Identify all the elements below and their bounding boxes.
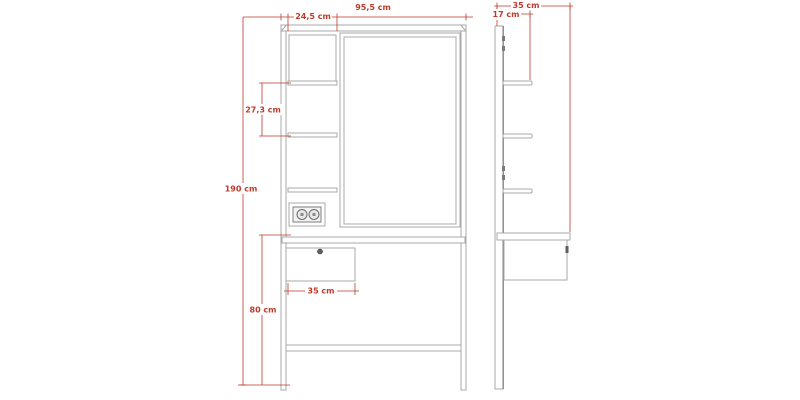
dim-side-depth: 35 cm — [494, 0, 573, 232]
side-shelf-3 — [503, 189, 532, 193]
front-top-rail — [281, 25, 466, 31]
socket-hole-left — [301, 213, 304, 216]
technical-drawing-canvas: 95,5 cm 24,5 cm 27,3 cm — [0, 0, 800, 400]
dim-overall-width-label: 95,5 cm — [355, 3, 391, 12]
dim-drawer-width-label: 35 cm — [308, 287, 335, 296]
mirror-frame — [340, 33, 460, 227]
shelf-bracket-3 — [502, 166, 505, 171]
desktop — [282, 237, 465, 243]
shelf-3 — [288, 188, 337, 192]
dim-drawer-width: 35 cm — [284, 283, 359, 296]
dim-compartment-width-label: 24,5 cm — [295, 12, 331, 21]
side-panel — [495, 26, 503, 389]
shelf-bracket-4 — [502, 175, 505, 180]
power-outlet — [289, 203, 325, 226]
dim-desk-height-label: 80 cm — [250, 306, 277, 315]
dim-shelf-spacing-label: 27,3 cm — [245, 106, 281, 115]
side-drawer — [504, 240, 567, 280]
stretcher-rail — [286, 345, 461, 351]
dim-overall-width: 95,5 cm — [243, 3, 473, 21]
side-shelf-1 — [503, 81, 532, 85]
dim-overall-height-label: 190 cm — [225, 185, 258, 194]
shelf-bracket-2 — [502, 46, 505, 51]
socket-hole-right — [313, 213, 316, 216]
dim-overall-height: 190 cm — [225, 17, 290, 385]
front-right-stile — [461, 25, 466, 390]
dim-shelf-depth-label: 17 cm — [493, 10, 520, 19]
technical-drawing-page: 95,5 cm 24,5 cm 27,3 cm — [0, 0, 800, 400]
shelf-1 — [288, 81, 337, 85]
top-compartment — [289, 35, 336, 82]
dim-side-depth-label: 35 cm — [513, 1, 540, 10]
side-shelf-2 — [503, 134, 532, 138]
side-view — [495, 26, 570, 389]
shelf-2 — [288, 133, 337, 137]
side-desktop — [497, 233, 570, 240]
front-left-stile — [281, 25, 286, 390]
shelf-bracket-1 — [502, 36, 505, 41]
drawer-knob — [318, 249, 323, 254]
side-drawer-knob — [566, 246, 569, 253]
front-view — [281, 25, 466, 390]
